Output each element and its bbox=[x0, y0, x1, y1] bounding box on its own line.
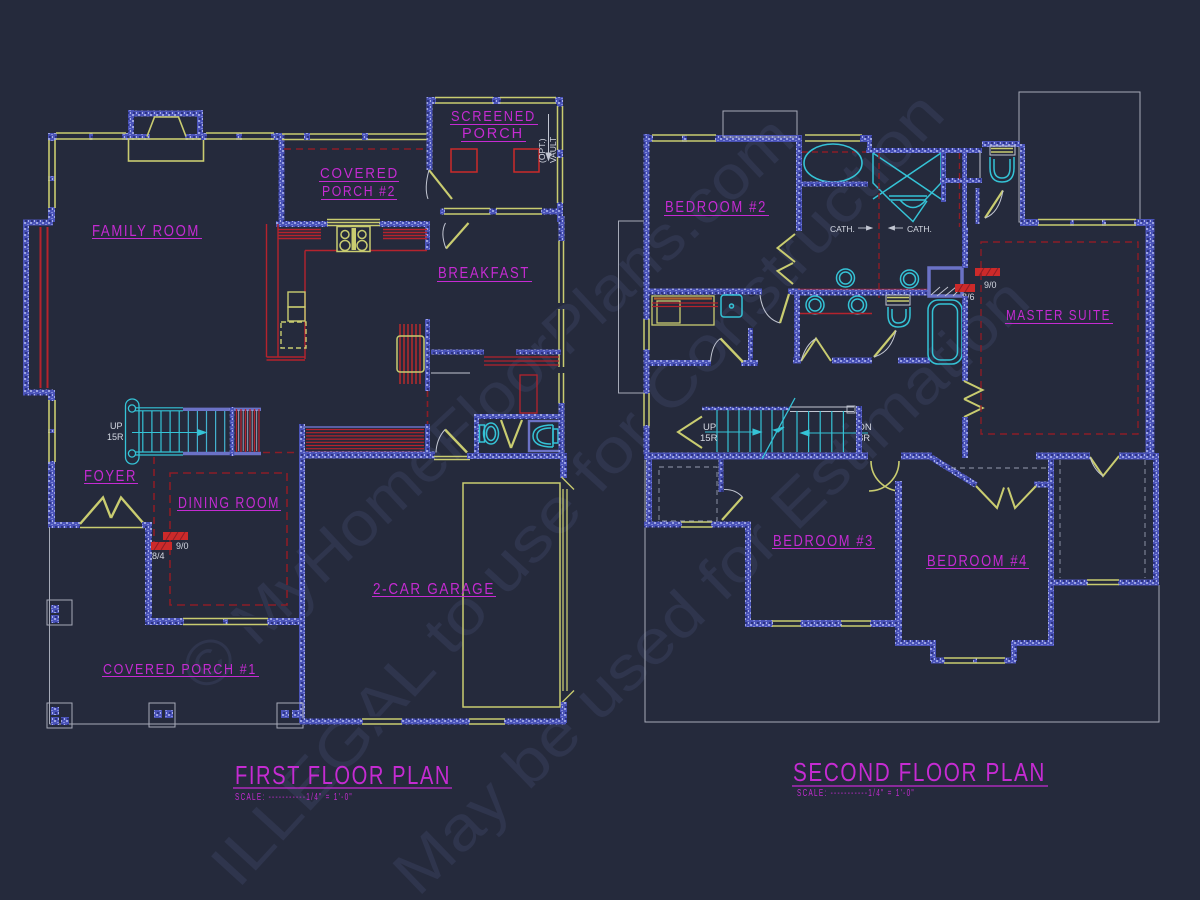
svg-text:COVERED PORCH #1: COVERED PORCH #1 bbox=[103, 661, 257, 678]
svg-text:DINING ROOM: DINING ROOM bbox=[178, 495, 280, 512]
svg-text:CATH.: CATH. bbox=[830, 224, 855, 234]
svg-text:15R: 15R bbox=[107, 432, 124, 442]
svg-text:PORCH: PORCH bbox=[462, 125, 524, 142]
svg-text:COVERED: COVERED bbox=[320, 165, 399, 182]
svg-text:MASTER SUITE: MASTER SUITE bbox=[1006, 307, 1111, 324]
svg-text:2-CAR GARAGE: 2-CAR GARAGE bbox=[373, 581, 495, 598]
svg-text:FIRST FLOOR PLAN: FIRST FLOOR PLAN bbox=[235, 760, 451, 790]
svg-text:9/0: 9/0 bbox=[176, 541, 189, 551]
svg-text:(OPT.): (OPT.) bbox=[537, 138, 547, 163]
svg-text:BEDROOM #2: BEDROOM #2 bbox=[665, 199, 767, 216]
svg-text:15R: 15R bbox=[700, 433, 718, 444]
svg-text:SCALE: -----------1/4" = 1'-0": SCALE: -----------1/4" = 1'-0" bbox=[235, 792, 353, 803]
svg-text:UP: UP bbox=[703, 422, 716, 433]
svg-text:SCREENED: SCREENED bbox=[451, 108, 536, 125]
svg-text:FOYER: FOYER bbox=[84, 468, 137, 485]
svg-text:BEDROOM #3: BEDROOM #3 bbox=[773, 533, 874, 550]
svg-text:SECOND FLOOR PLAN: SECOND FLOOR PLAN bbox=[793, 757, 1046, 787]
svg-text:UP: UP bbox=[110, 421, 123, 431]
svg-text:CATH.: CATH. bbox=[907, 224, 932, 234]
svg-text:SCALE: -----------1/4" = 1'-0": SCALE: -----------1/4" = 1'-0" bbox=[797, 788, 915, 799]
svg-text:BEDROOM #4: BEDROOM #4 bbox=[927, 553, 1028, 570]
svg-text:VAULT: VAULT bbox=[548, 137, 558, 163]
svg-text:PORCH #2: PORCH #2 bbox=[322, 183, 396, 200]
svg-text:BREAKFAST: BREAKFAST bbox=[438, 265, 530, 282]
svg-text:9/0: 9/0 bbox=[984, 280, 997, 290]
svg-text:8/4: 8/4 bbox=[152, 551, 165, 561]
svg-text:FAMILY ROOM: FAMILY ROOM bbox=[92, 223, 200, 240]
